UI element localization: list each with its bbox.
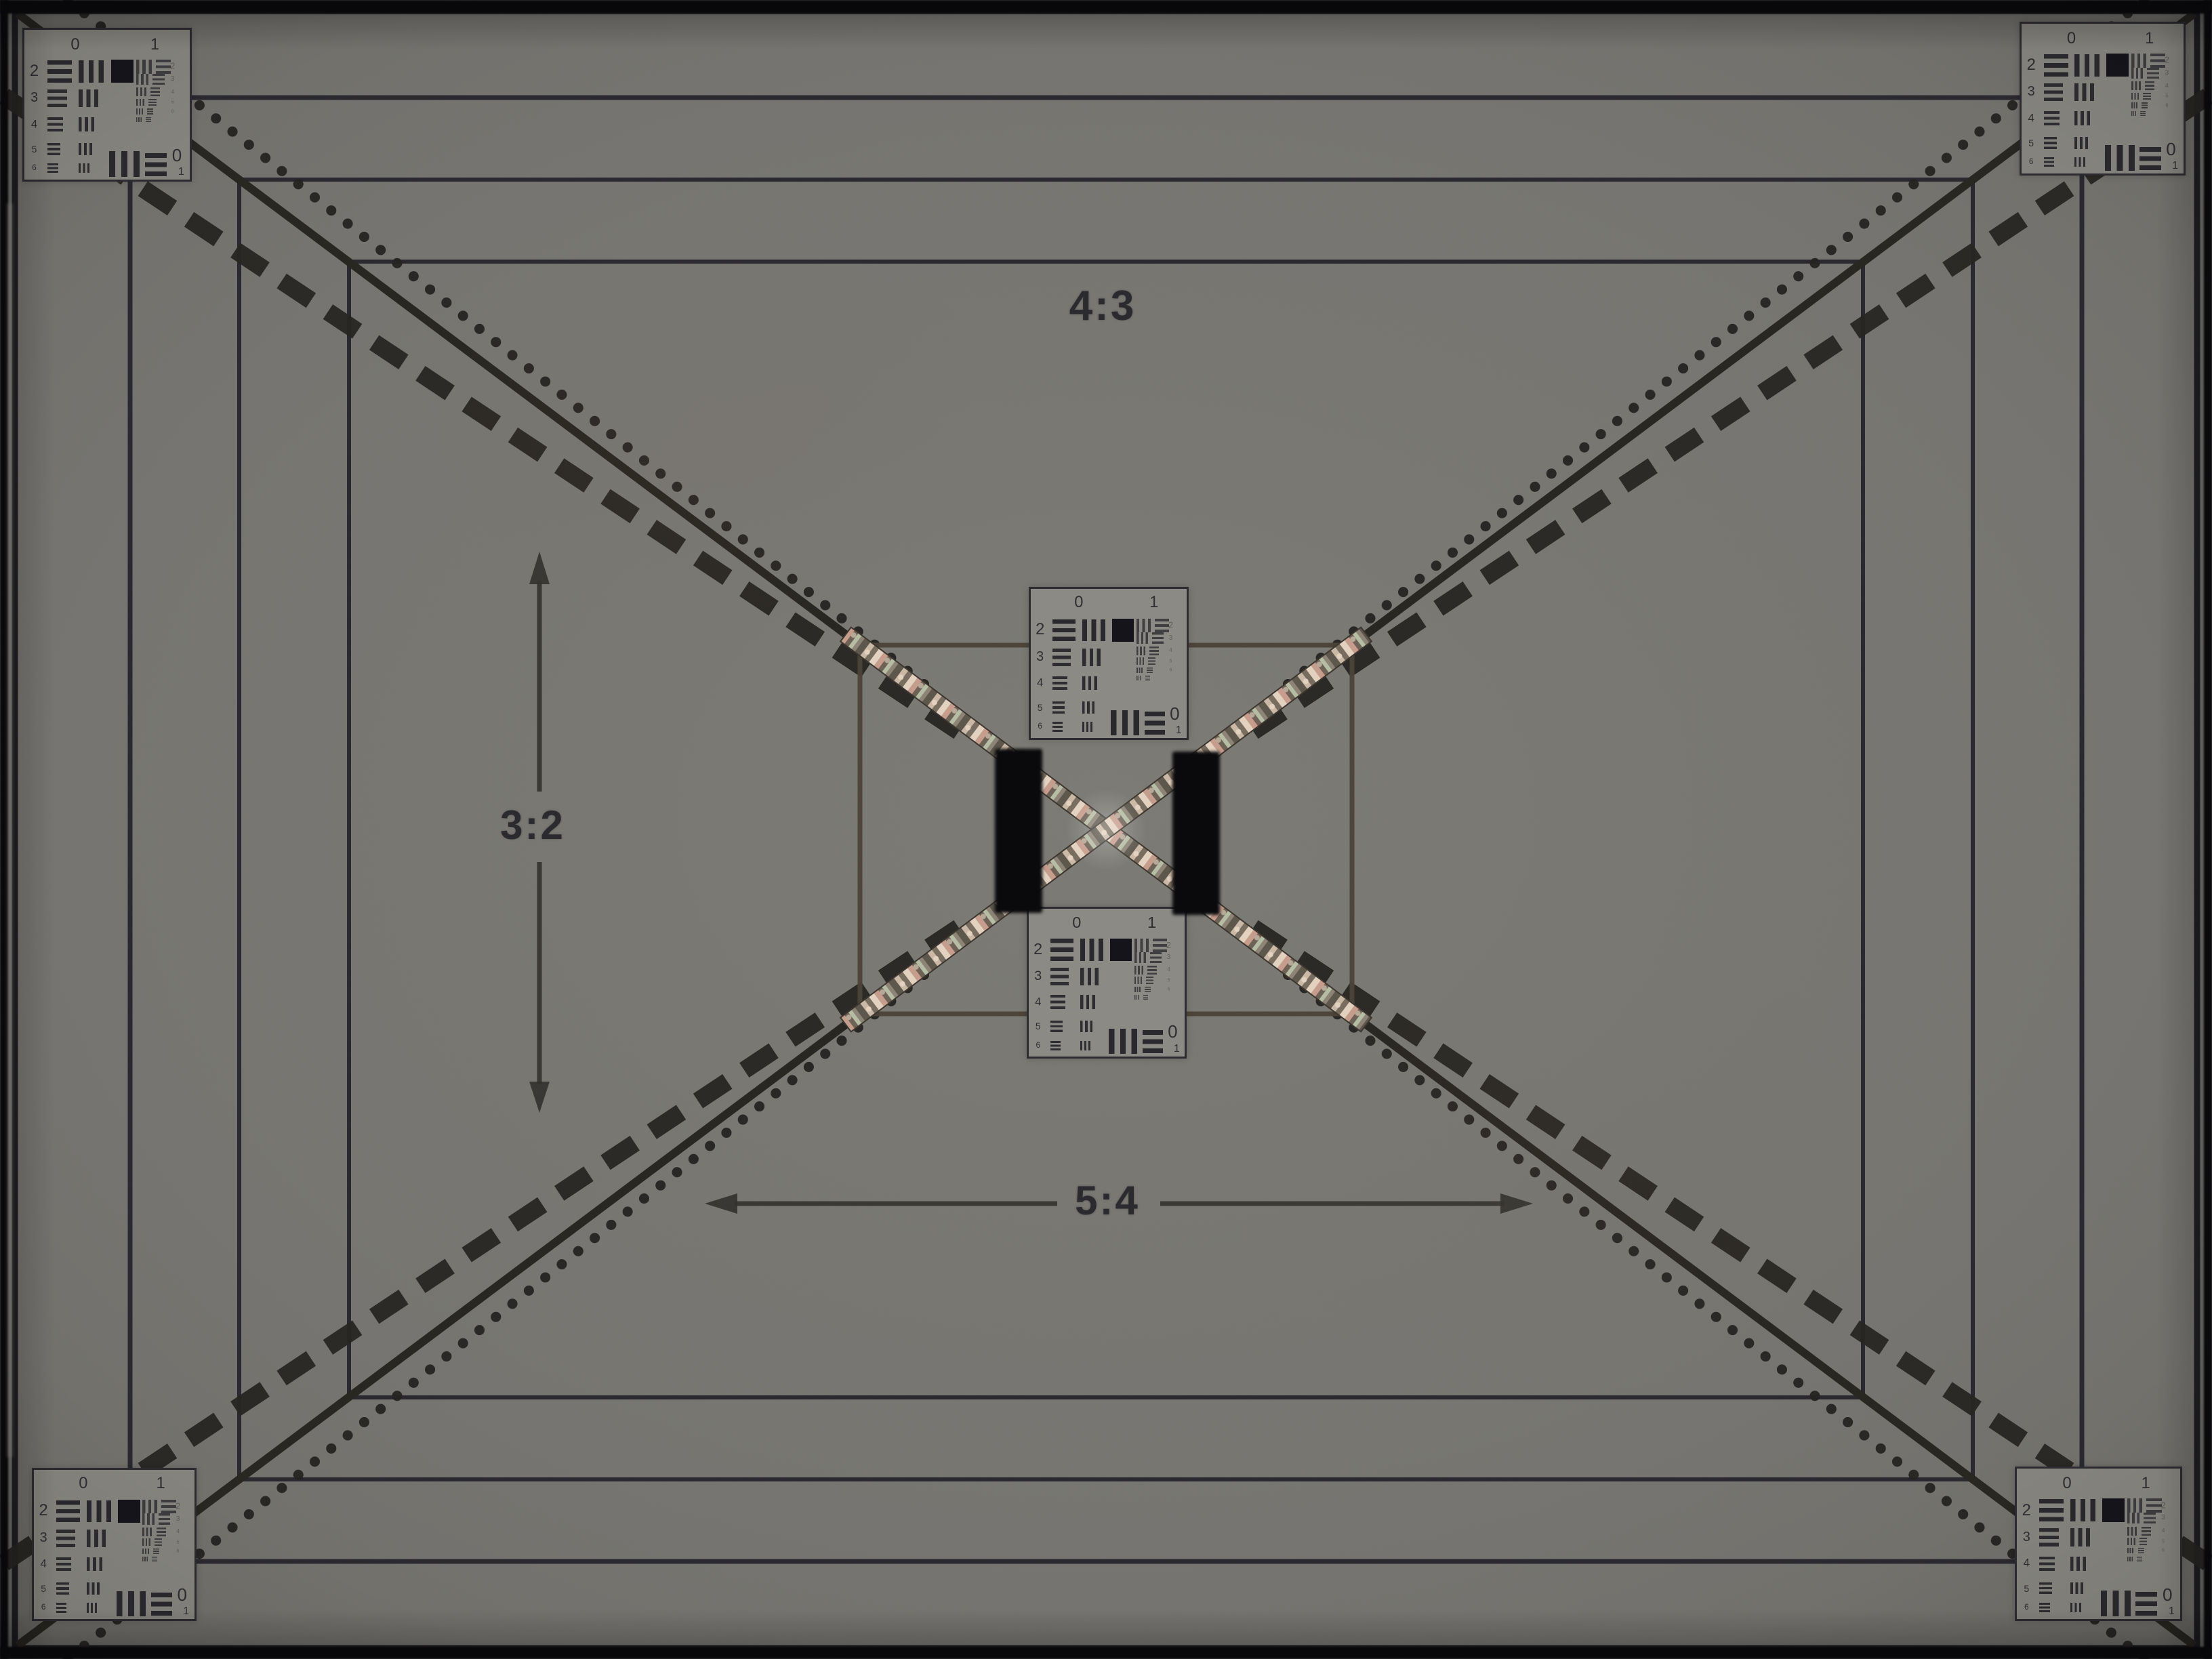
bar-group-horizontal <box>157 1528 166 1536</box>
bar-group-horizontal <box>2039 1528 2058 1546</box>
target-bottom-digit-1: 1 <box>1176 725 1182 736</box>
bar-group-vertical <box>1134 995 1139 1000</box>
target-row-digit-3: 3 <box>2028 85 2035 99</box>
target-bottom-digit-1: 1 <box>2172 161 2178 171</box>
bar-group-horizontal <box>2140 111 2146 116</box>
target-row-digit-4: 4 <box>31 119 37 130</box>
bar-group-horizontal <box>1149 647 1159 655</box>
photo-edge-left <box>0 0 8 1659</box>
bar-group-horizontal <box>146 117 151 122</box>
bar-group-vertical <box>136 60 152 73</box>
target-row-digit-2: 2 <box>2022 1502 2031 1519</box>
target-top-digit-0: 0 <box>79 1477 87 1493</box>
bar-group-horizontal <box>47 60 72 83</box>
target-bottom-digit-1: 1 <box>178 167 184 178</box>
target-top-digit-1: 1 <box>1149 596 1158 612</box>
target-element-digit: 2 <box>2165 56 2169 65</box>
target-row-digit-3: 3 <box>1034 970 1042 983</box>
target-element-digit: 2 <box>176 1502 180 1511</box>
target-element-digit: 3 <box>2165 70 2169 77</box>
target-element-digit: 5 <box>177 1540 180 1544</box>
bar-group-vertical <box>79 89 98 107</box>
photo-edge-top <box>0 0 2212 14</box>
target-element-digit: 5 <box>2162 1539 2165 1544</box>
target-row-digit-6: 6 <box>2029 158 2034 166</box>
bar-group-vertical <box>2074 54 2099 77</box>
bar-group-horizontal <box>2044 54 2068 77</box>
target-row-digit-2: 2 <box>30 63 39 79</box>
target-row-digit-4: 4 <box>1035 996 1041 1008</box>
bar-group-horizontal <box>1145 712 1166 735</box>
bar-group-horizontal <box>147 108 154 115</box>
bar-group-horizontal <box>1052 649 1071 666</box>
bar-group-vertical <box>1136 668 1143 674</box>
bar-group-vertical <box>1136 676 1141 680</box>
target-bottom-digit-1: 1 <box>2169 1606 2175 1617</box>
bar-group-horizontal <box>2044 83 2063 101</box>
bar-group-vertical <box>142 1557 148 1561</box>
bar-group-vertical <box>142 1538 150 1546</box>
bar-group-horizontal <box>2139 147 2161 170</box>
bar-group-vertical <box>1134 977 1142 984</box>
bar-group-horizontal <box>1145 676 1150 680</box>
bar-group-horizontal <box>152 74 165 85</box>
target-element-digit: 4 <box>1169 648 1172 653</box>
bar-group-vertical <box>1082 701 1095 713</box>
bar-group-horizontal <box>1050 968 1069 985</box>
bar-group-horizontal <box>2142 1527 2151 1536</box>
target-top-digit-1: 1 <box>150 37 159 53</box>
bar-group-horizontal <box>1050 939 1073 960</box>
bar-group-horizontal <box>1146 977 1153 984</box>
target-element-digit: 3 <box>176 1515 180 1522</box>
photo-edge-right <box>2204 0 2212 1659</box>
bar-group-horizontal <box>156 60 171 73</box>
bar-group-horizontal <box>2146 1498 2161 1513</box>
target-row-digit-5: 5 <box>2028 138 2034 148</box>
bar-group-vertical <box>136 99 144 106</box>
usaf-target-corner-top-right: 01234562345601 <box>2020 22 2186 176</box>
bar-group-horizontal <box>2044 111 2060 125</box>
target-row-digit-6: 6 <box>1036 1042 1040 1050</box>
bar-group-horizontal <box>2044 157 2054 167</box>
test-chart-photo: 0123456234560101234562345601012345623456… <box>0 0 2212 1659</box>
bar-group-horizontal <box>2142 102 2148 108</box>
bar-group-horizontal <box>2150 54 2165 67</box>
bar-group-vertical <box>136 117 142 122</box>
bar-group-horizontal <box>2039 1603 2050 1612</box>
aspect-label-5-4: 5:4 <box>1075 1181 1140 1221</box>
bar-group-horizontal <box>47 163 58 173</box>
target-element-digit: 6 <box>171 109 174 114</box>
target-row-digit-6: 6 <box>41 1604 46 1612</box>
bar-group-horizontal <box>151 1593 173 1616</box>
bar-group-horizontal <box>1052 676 1067 691</box>
bar-group-horizontal <box>47 89 67 107</box>
bar-group-horizontal <box>1145 987 1151 993</box>
bar-group-vertical <box>2101 1591 2131 1616</box>
bar-group-vertical <box>87 1500 111 1523</box>
bar-group-vertical <box>79 60 104 83</box>
bar-group-vertical <box>2074 137 2087 148</box>
target-row-digit-3: 3 <box>30 91 38 105</box>
bar-group-horizontal <box>1050 995 1065 1009</box>
grain-overlay <box>0 0 2212 1659</box>
target-bottom-digit-0: 0 <box>177 1586 186 1603</box>
target-row-digit-4: 4 <box>1037 678 1043 689</box>
bar-group-horizontal <box>1050 1041 1061 1050</box>
bar-group-horizontal <box>148 99 157 106</box>
bar-group-horizontal <box>56 1530 75 1547</box>
bar-group-horizontal <box>1152 632 1164 643</box>
bar-group-vertical <box>1134 939 1149 952</box>
bar-group-vertical <box>2070 1582 2083 1595</box>
bar-group-vertical <box>1080 1021 1093 1032</box>
target-element-digit: 6 <box>2162 1549 2165 1553</box>
target-element-digit: 6 <box>2165 103 2168 108</box>
target-row-digit-2: 2 <box>1036 622 1044 638</box>
bar-group-horizontal <box>1143 1030 1164 1053</box>
bar-group-horizontal <box>1147 966 1157 975</box>
target-top-digit-0: 0 <box>1072 916 1081 932</box>
bar-group-vertical <box>1082 619 1106 642</box>
target-bottom-digit-0: 0 <box>1170 705 1179 722</box>
bar-group-vertical <box>1109 1029 1137 1054</box>
target-black-square <box>2102 1498 2125 1521</box>
target-row-digit-5: 5 <box>2024 1584 2029 1593</box>
target-row-digit-5: 5 <box>1038 703 1043 712</box>
bar-group-vertical <box>2074 157 2085 167</box>
aspect-label-3-2: 3:2 <box>500 805 565 846</box>
target-element-digit: 5 <box>171 100 174 105</box>
target-row-digit-6: 6 <box>2024 1603 2029 1612</box>
target-row-digit-5: 5 <box>32 144 37 154</box>
bar-group-vertical <box>2127 1538 2135 1545</box>
target-element-digit: 4 <box>176 1529 180 1534</box>
target-element-digit: 5 <box>1170 659 1172 663</box>
bar-group-vertical <box>136 74 148 85</box>
target-bottom-digit-0: 0 <box>172 146 182 164</box>
bar-group-vertical <box>1136 657 1144 665</box>
bar-group-vertical <box>1136 619 1151 632</box>
bar-group-vertical <box>2105 145 2135 170</box>
black-calibration-bar-left <box>995 749 1042 913</box>
bar-group-vertical <box>79 117 94 131</box>
bar-group-horizontal <box>152 1557 157 1561</box>
target-black-square <box>2106 54 2129 77</box>
bar-group-horizontal <box>1050 1021 1063 1032</box>
bar-group-horizontal <box>2139 1538 2148 1545</box>
target-element-digit: 4 <box>2165 83 2169 89</box>
bar-group-vertical <box>136 87 146 96</box>
target-row-digit-4: 4 <box>2028 112 2034 124</box>
bar-group-vertical <box>109 151 140 176</box>
bar-group-horizontal <box>56 1557 71 1572</box>
bar-group-horizontal <box>2145 81 2154 90</box>
black-calibration-bar-right <box>1172 752 1220 915</box>
bar-group-vertical <box>1134 987 1141 993</box>
bar-group-vertical <box>2131 102 2137 108</box>
target-element-digit: 4 <box>171 89 174 95</box>
bar-group-vertical <box>1080 968 1099 985</box>
bar-group-horizontal <box>2143 93 2151 100</box>
bar-group-horizontal <box>56 1603 66 1612</box>
bar-group-vertical <box>1080 939 1104 960</box>
bar-group-vertical <box>2127 1527 2137 1536</box>
bar-group-vertical <box>1111 710 1139 735</box>
bar-group-horizontal <box>1155 619 1169 632</box>
target-row-digit-5: 5 <box>1036 1022 1041 1031</box>
target-black-square <box>1110 939 1132 962</box>
target-top-digit-1: 1 <box>2145 30 2154 47</box>
bar-group-horizontal <box>47 117 63 131</box>
bar-group-horizontal <box>1150 952 1162 963</box>
target-row-digit-6: 6 <box>32 164 37 172</box>
bar-group-horizontal <box>47 143 60 155</box>
bar-group-vertical <box>2070 1557 2086 1571</box>
target-top-digit-1: 1 <box>2142 1475 2150 1492</box>
bar-group-horizontal <box>145 153 167 176</box>
bar-group-vertical <box>142 1549 148 1555</box>
target-bottom-digit-0: 0 <box>2163 1586 2173 1603</box>
bar-group-vertical <box>1136 632 1148 643</box>
bar-group-horizontal <box>2147 68 2159 79</box>
target-top-digit-0: 0 <box>70 37 79 53</box>
bar-group-vertical <box>79 143 92 155</box>
target-bottom-digit-0: 0 <box>2166 140 2176 158</box>
bar-group-vertical <box>2127 1557 2133 1561</box>
target-top-digit-1: 1 <box>1147 916 1156 932</box>
target-element-digit: 4 <box>2162 1528 2165 1534</box>
bar-group-horizontal <box>153 1549 159 1555</box>
target-row-digit-3: 3 <box>40 1532 47 1545</box>
target-element-digit: 4 <box>1167 967 1170 972</box>
bar-group-vertical <box>2131 68 2144 79</box>
target-element-digit: 2 <box>1168 621 1173 630</box>
target-bottom-digit-1: 1 <box>183 1606 189 1617</box>
bar-group-vertical <box>1136 647 1146 655</box>
target-element-digit: 6 <box>1170 668 1172 673</box>
usaf-target-corner-bottom-right: 01234562345601 <box>2015 1467 2182 1621</box>
target-row-digit-2: 2 <box>39 1503 47 1519</box>
bar-group-horizontal <box>155 1538 162 1546</box>
bar-group-horizontal <box>161 1500 176 1513</box>
bar-group-vertical <box>2127 1548 2133 1554</box>
bar-group-vertical <box>1134 952 1146 963</box>
bar-group-vertical <box>2131 54 2146 67</box>
target-top-digit-0: 0 <box>1074 596 1083 612</box>
target-row-digit-6: 6 <box>1038 723 1042 731</box>
bar-group-vertical <box>87 1582 100 1594</box>
bar-group-vertical <box>2131 93 2139 100</box>
bar-group-vertical <box>1082 649 1101 666</box>
bar-group-horizontal <box>2135 1592 2157 1615</box>
bar-group-vertical <box>1080 995 1095 1009</box>
bar-group-horizontal <box>56 1582 69 1594</box>
bar-group-horizontal <box>2044 137 2057 148</box>
bar-group-vertical <box>87 1530 106 1547</box>
bar-group-vertical <box>1082 722 1092 731</box>
usaf-target-corner-top-left: 01234562345601 <box>22 28 192 182</box>
target-element-digit: 6 <box>1168 987 1170 991</box>
bar-group-horizontal <box>2039 1499 2064 1521</box>
bar-group-horizontal <box>1147 668 1153 674</box>
target-row-digit-2: 2 <box>1033 942 1042 958</box>
target-black-square <box>118 1500 140 1523</box>
bar-group-horizontal <box>2039 1557 2055 1571</box>
target-row-digit-3: 3 <box>1036 651 1044 664</box>
target-element-digit: 5 <box>1168 978 1170 983</box>
bar-group-vertical <box>142 1500 157 1513</box>
target-element-digit: 3 <box>1169 634 1173 641</box>
target-bottom-digit-1: 1 <box>1174 1044 1180 1054</box>
bar-group-vertical <box>87 1557 102 1572</box>
bar-group-vertical <box>142 1528 152 1536</box>
bar-group-horizontal <box>2138 1548 2144 1554</box>
bar-group-horizontal <box>150 87 161 96</box>
target-row-digit-4: 4 <box>2024 1558 2030 1570</box>
target-element-digit: 6 <box>177 1549 180 1554</box>
bar-group-vertical <box>2127 1498 2142 1513</box>
bar-group-vertical <box>87 1603 98 1612</box>
photo-edge-bottom <box>0 1647 2212 1659</box>
bar-group-horizontal <box>1153 939 1167 952</box>
target-bottom-digit-0: 0 <box>1168 1024 1177 1042</box>
usaf-target-center-top: 01234562345601 <box>1029 587 1189 740</box>
bar-group-horizontal <box>159 1513 170 1524</box>
usaf-target-center-bottom: 01234562345601 <box>1027 907 1187 1059</box>
bar-group-vertical <box>2070 1528 2090 1546</box>
bar-group-vertical <box>117 1591 146 1616</box>
bar-group-horizontal <box>1052 701 1065 713</box>
target-element-digit: 5 <box>2165 94 2168 99</box>
bar-group-vertical <box>1080 1041 1090 1050</box>
target-top-digit-0: 0 <box>2067 30 2076 47</box>
chart-geometry <box>0 0 2212 1659</box>
usaf-target-corner-bottom-left: 01234562345601 <box>32 1468 197 1621</box>
target-black-square <box>1112 619 1134 642</box>
target-row-digit-3: 3 <box>2023 1530 2030 1544</box>
bar-group-vertical <box>2131 81 2141 90</box>
bar-group-vertical <box>1082 676 1097 691</box>
bar-group-horizontal <box>56 1500 80 1523</box>
bar-group-horizontal <box>1143 995 1148 1000</box>
target-top-digit-1: 1 <box>157 1477 165 1493</box>
bar-group-horizontal <box>2039 1582 2052 1595</box>
bar-group-horizontal <box>1148 657 1155 665</box>
bar-group-vertical <box>2070 1499 2095 1521</box>
bar-group-vertical <box>79 163 89 173</box>
target-top-digit-0: 0 <box>2062 1475 2071 1492</box>
bar-group-vertical <box>1134 966 1144 975</box>
target-row-digit-5: 5 <box>41 1584 46 1593</box>
bar-group-vertical <box>2074 111 2090 125</box>
bar-group-horizontal <box>2144 1513 2156 1523</box>
bar-group-horizontal <box>1052 722 1063 731</box>
bar-group-vertical <box>2131 111 2137 116</box>
bar-group-horizontal <box>1052 619 1076 642</box>
target-row-digit-2: 2 <box>2027 57 2036 73</box>
bar-group-vertical <box>2074 83 2094 101</box>
target-element-digit: 2 <box>1166 941 1171 950</box>
bar-group-horizontal <box>2137 1557 2142 1561</box>
target-element-digit: 3 <box>2161 1515 2165 1521</box>
target-element-digit: 3 <box>1167 954 1171 961</box>
target-element-digit: 2 <box>2161 1501 2166 1510</box>
target-row-digit-4: 4 <box>40 1559 46 1570</box>
bar-group-vertical <box>142 1513 154 1524</box>
bar-group-vertical <box>2127 1513 2139 1523</box>
aspect-label-4-3: 4:3 <box>1069 285 1136 327</box>
bar-group-vertical <box>136 108 143 115</box>
target-element-digit: 3 <box>171 76 175 83</box>
bar-group-vertical <box>2070 1603 2081 1612</box>
target-black-square <box>111 60 134 83</box>
target-element-digit: 2 <box>170 62 175 71</box>
